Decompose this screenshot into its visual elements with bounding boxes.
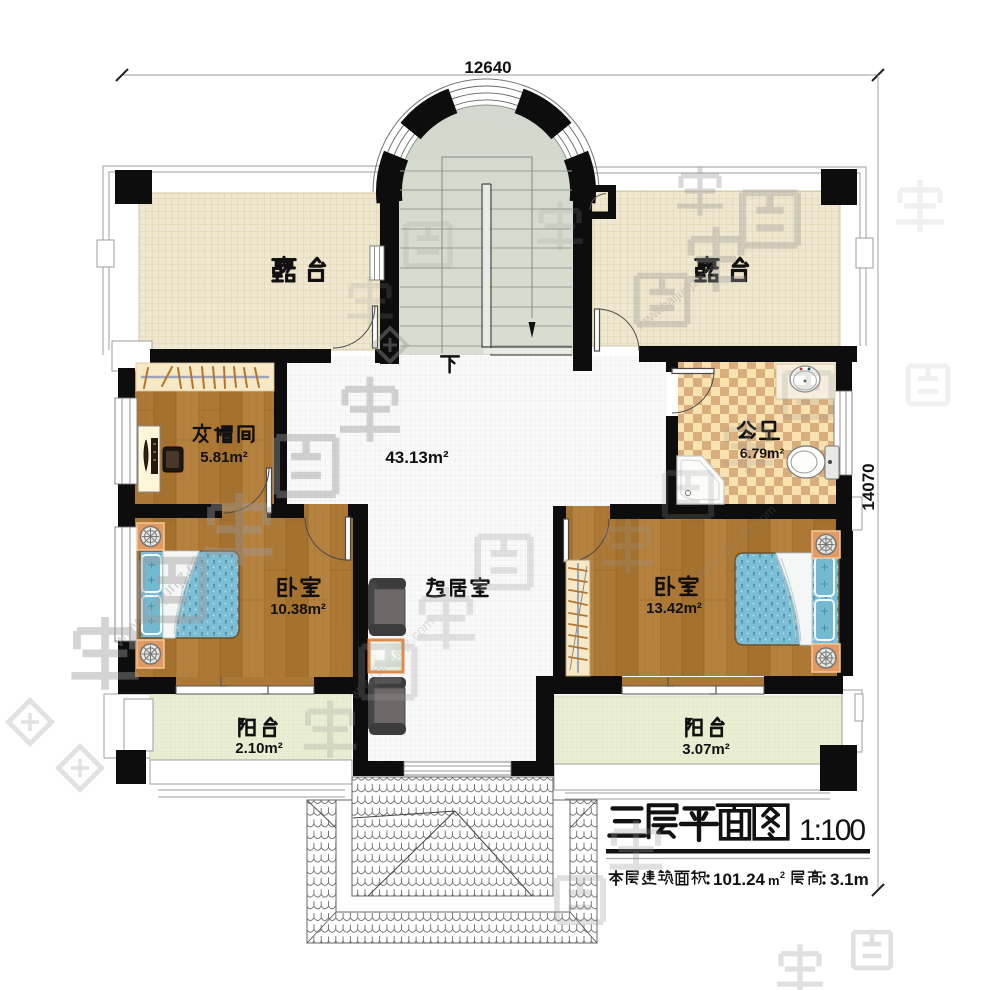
svg-text:13.42m²: 13.42m² <box>646 600 702 617</box>
svg-text:3.1m: 3.1m <box>830 870 869 889</box>
svg-text:12640: 12640 <box>464 58 511 77</box>
svg-text:5.81m²: 5.81m² <box>200 449 248 466</box>
svg-text:2: 2 <box>780 870 785 880</box>
svg-text:10.38m²: 10.38m² <box>270 601 326 618</box>
svg-text:1:100: 1:100 <box>799 814 865 847</box>
svg-text:14070: 14070 <box>859 463 878 510</box>
svg-text:101.24: 101.24 <box>713 870 766 889</box>
svg-text:43.13m²: 43.13m² <box>385 448 449 467</box>
svg-text:2.10m²: 2.10m² <box>235 740 283 757</box>
svg-text:m: m <box>768 873 780 888</box>
svg-text:3.07m²: 3.07m² <box>682 741 730 758</box>
